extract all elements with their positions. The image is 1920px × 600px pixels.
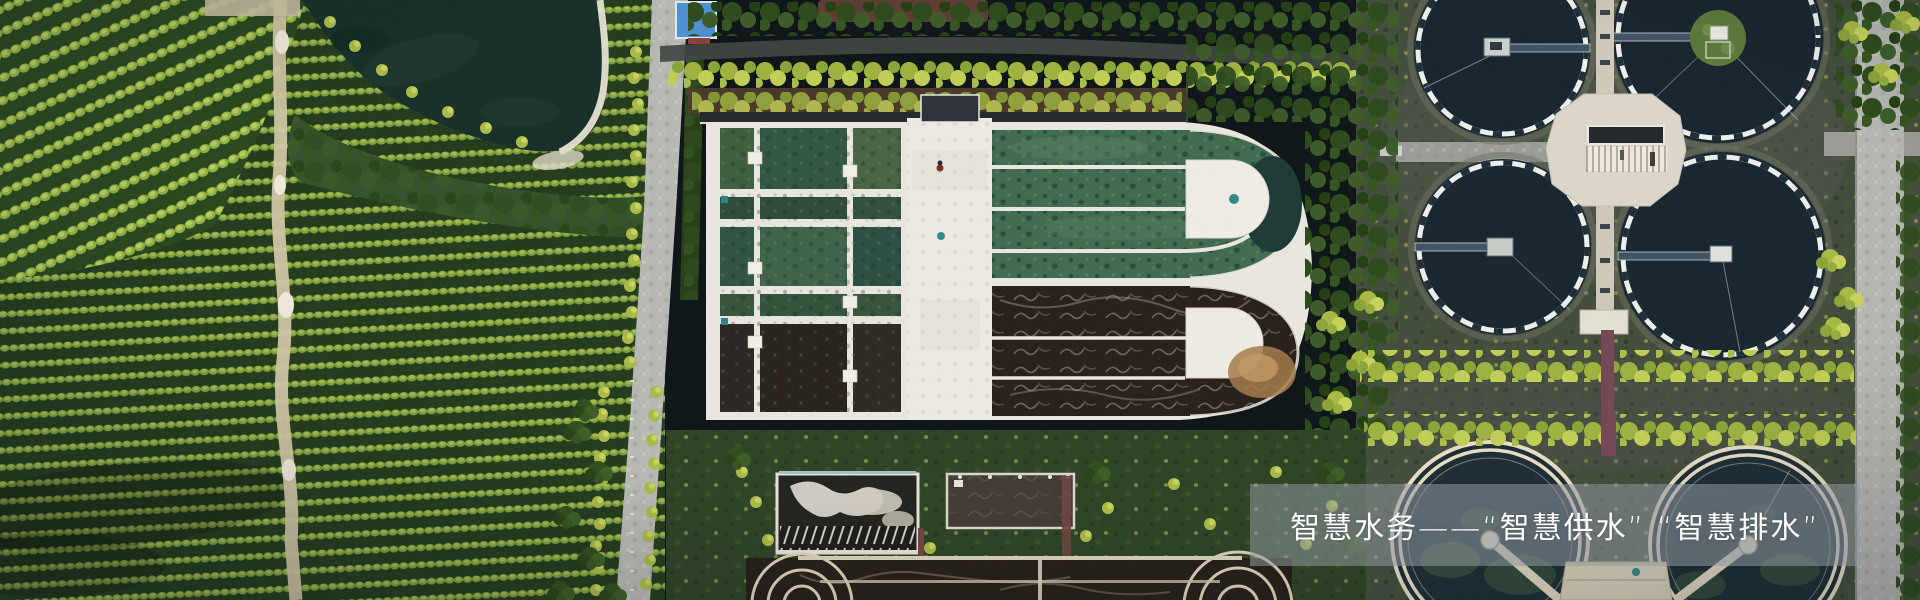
- caption-overlay: 智慧水务——“智慧供水” “智慧排水”: [1250, 484, 1860, 566]
- hero-banner: 智慧水务——“智慧供水” “智慧排水”: [0, 0, 1920, 600]
- caption-text: 智慧水务——“智慧供水” “智慧排水”: [1290, 503, 1820, 547]
